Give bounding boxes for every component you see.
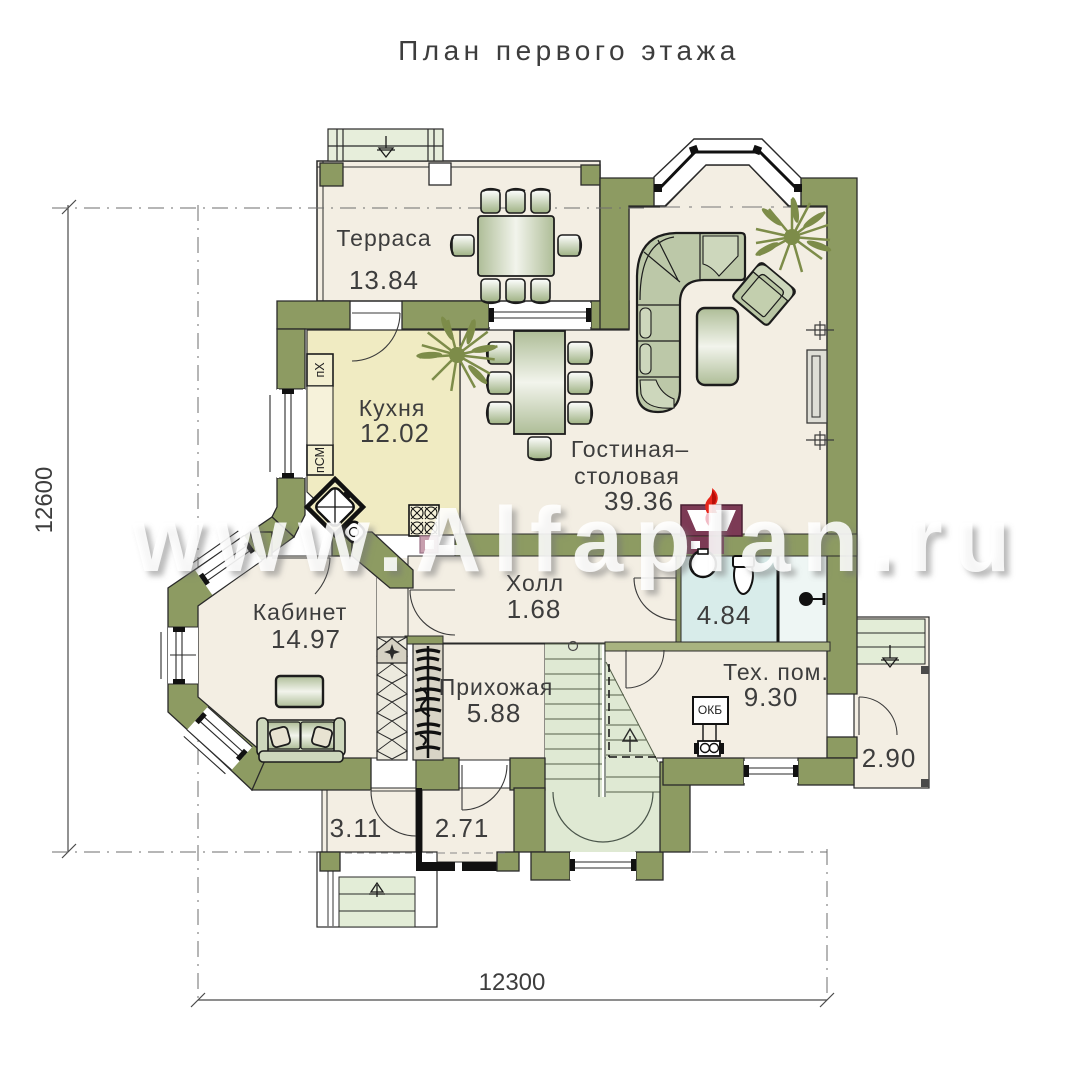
svg-text:Терраса: Терраса <box>336 225 431 251</box>
svg-text:www.Alfaplan.ru: www.Alfaplan.ru <box>131 489 1022 591</box>
svg-text:12300: 12300 <box>479 969 546 996</box>
svg-text:12600: 12600 <box>31 467 58 534</box>
svg-text:План первого этажа: План первого этажа <box>398 35 740 66</box>
svg-text:4.84: 4.84 <box>697 600 752 630</box>
svg-text:Гостиная–: Гостиная– <box>571 436 689 462</box>
svg-text:Прихожая: Прихожая <box>439 674 554 700</box>
svg-text:5.88: 5.88 <box>467 698 522 728</box>
svg-text:1.68: 1.68 <box>507 594 562 624</box>
svg-text:9.30: 9.30 <box>744 682 799 712</box>
svg-text:2.90: 2.90 <box>862 743 917 773</box>
svg-text:12.02: 12.02 <box>360 418 430 448</box>
svg-text:2.71: 2.71 <box>435 813 490 843</box>
svg-text:14.97: 14.97 <box>271 624 341 654</box>
svg-text:пСМ: пСМ <box>313 447 327 473</box>
svg-text:ОКБ: ОКБ <box>698 703 722 717</box>
svg-text:Кабинет: Кабинет <box>253 599 347 625</box>
svg-text:13.84: 13.84 <box>349 265 419 295</box>
svg-text:пХ: пХ <box>313 362 327 378</box>
svg-text:3.11: 3.11 <box>330 813 383 843</box>
